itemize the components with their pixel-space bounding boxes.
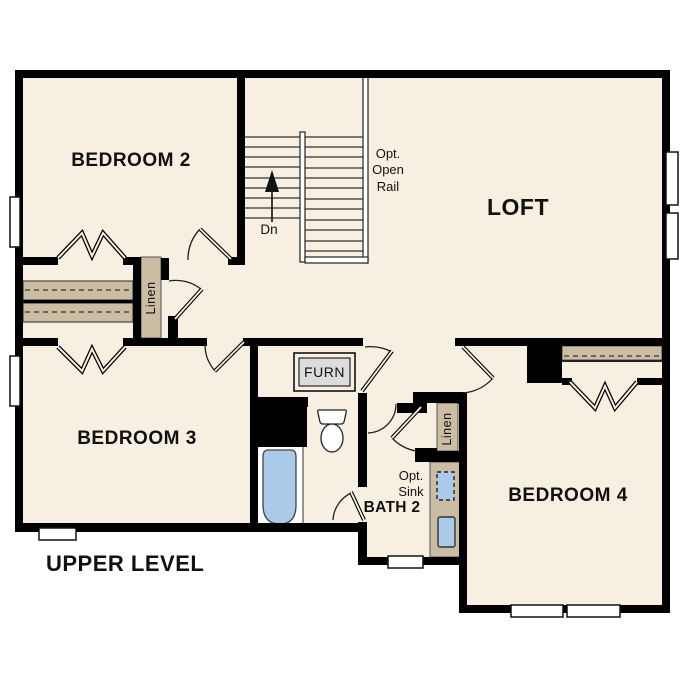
linen-bath-label: Linen	[440, 399, 454, 459]
bedroom4-closet-shelf	[562, 346, 662, 360]
toilet-tank	[318, 410, 347, 424]
stair-bottom-rail	[305, 257, 368, 263]
floor-plan-page: BEDROOM 2 LOFT BEDROOM 3 BEDROOM 4 BATH …	[0, 0, 687, 687]
floor-plan-drawing	[0, 0, 687, 687]
window-loft-upper	[666, 152, 678, 205]
stair-center-rail	[300, 132, 305, 262]
bath2-label: BATH 2	[362, 499, 422, 517]
plan-title: UPPER LEVEL	[46, 550, 204, 578]
window-bedroom2	[10, 197, 20, 247]
bathtub	[263, 450, 296, 524]
window-bedroom4-left	[511, 605, 563, 617]
opt-open-rail-label: Opt. Open Rail	[364, 146, 412, 195]
furnace-label: FURN	[299, 364, 350, 382]
loft-label: LOFT	[468, 193, 568, 222]
window-bedroom3-left	[10, 356, 20, 406]
window-bath	[388, 556, 423, 568]
sink	[438, 517, 455, 547]
optional-sink	[437, 472, 454, 500]
bedroom4-label: BEDROOM 4	[488, 484, 648, 508]
stairs-dn-label: Dn	[253, 222, 285, 239]
window-bedroom4-right	[567, 605, 620, 617]
window-bedroom3-bottom	[39, 528, 76, 540]
bedroom3-label: BEDROOM 3	[57, 427, 217, 451]
window-loft-lower	[666, 213, 678, 259]
toilet-bowl	[321, 424, 343, 452]
linen-hall-label: Linen	[144, 268, 158, 328]
bedroom2-label: BEDROOM 2	[51, 149, 211, 173]
opt-sink-label: Opt. Sink	[387, 468, 435, 501]
